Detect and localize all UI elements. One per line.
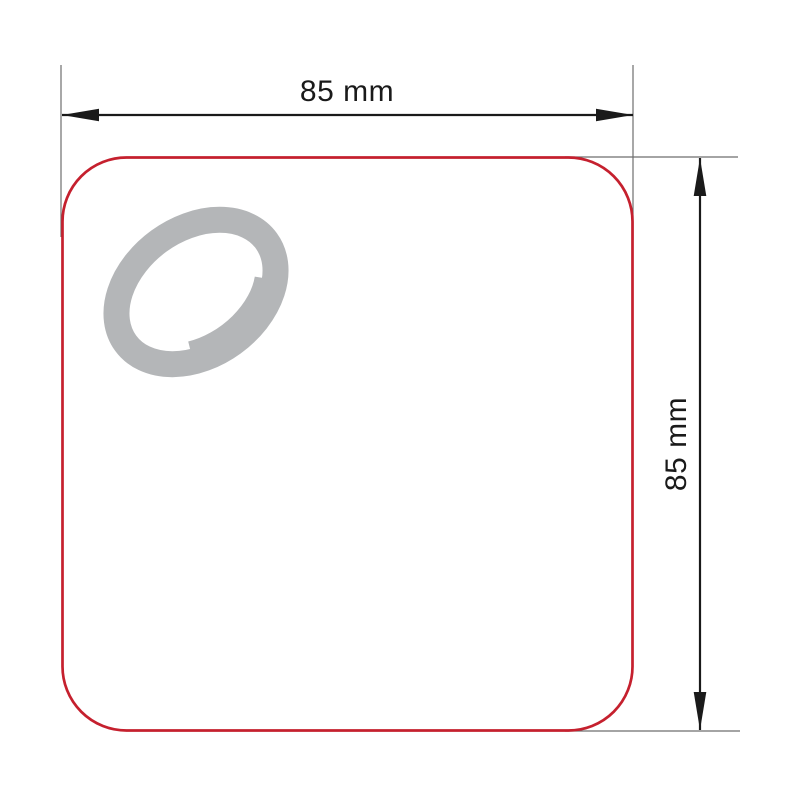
height-arrowhead-top	[694, 158, 707, 196]
width-arrowhead-left	[62, 109, 99, 122]
dimension-diagram: 85 mm 85 mm	[0, 0, 800, 800]
width-arrowhead-right	[596, 109, 633, 122]
width-dimension-label: 85 mm	[300, 75, 394, 108]
height-dimension-label: 85 mm	[660, 397, 693, 491]
height-arrowhead-bottom	[694, 692, 707, 730]
diagram-canvas: 85 mm 85 mm	[0, 0, 800, 800]
